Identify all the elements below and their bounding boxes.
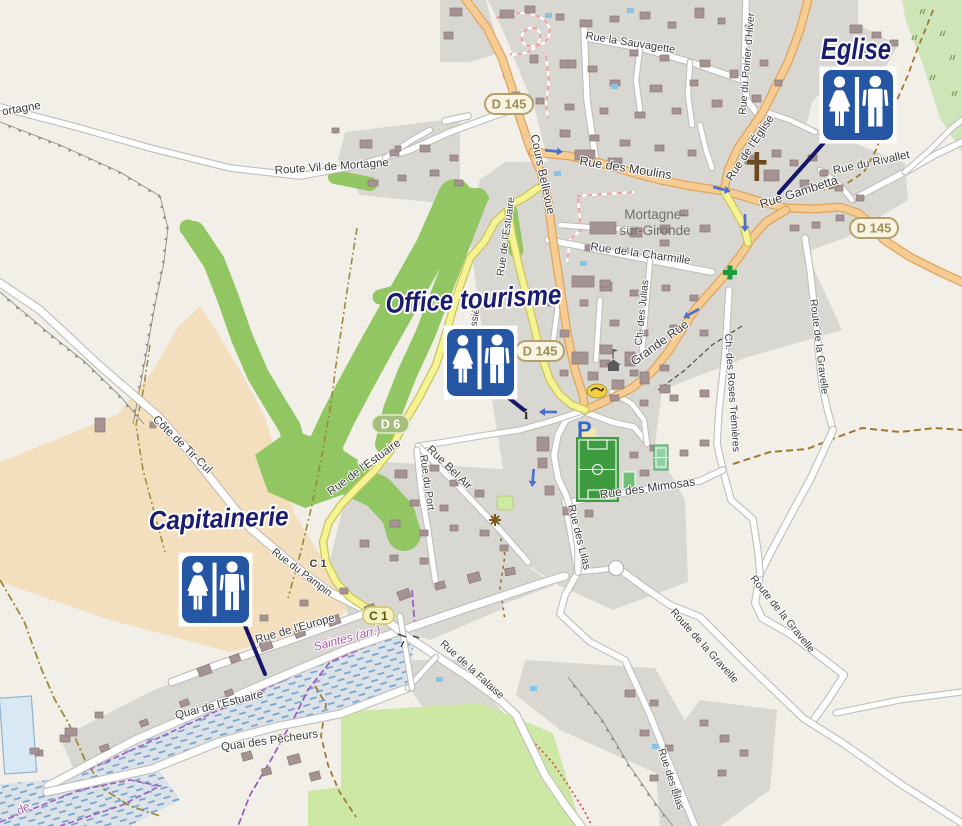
svg-text:D 145: D 145 bbox=[857, 221, 892, 236]
svg-text:Eglise: Eglise bbox=[821, 33, 891, 66]
svg-text:D 145: D 145 bbox=[492, 97, 527, 112]
svg-text:D 145: D 145 bbox=[523, 344, 558, 359]
svg-text:sur-Gironde: sur-Gironde bbox=[619, 223, 690, 238]
svg-text:C 1: C 1 bbox=[309, 558, 326, 570]
svg-text:D 6: D 6 bbox=[381, 418, 401, 432]
svg-text:P: P bbox=[577, 417, 592, 442]
svg-text:C 1: C 1 bbox=[369, 609, 388, 623]
svg-text:Mortagne-: Mortagne- bbox=[624, 207, 686, 222]
svg-text:Capitainerie: Capitainerie bbox=[148, 501, 289, 536]
